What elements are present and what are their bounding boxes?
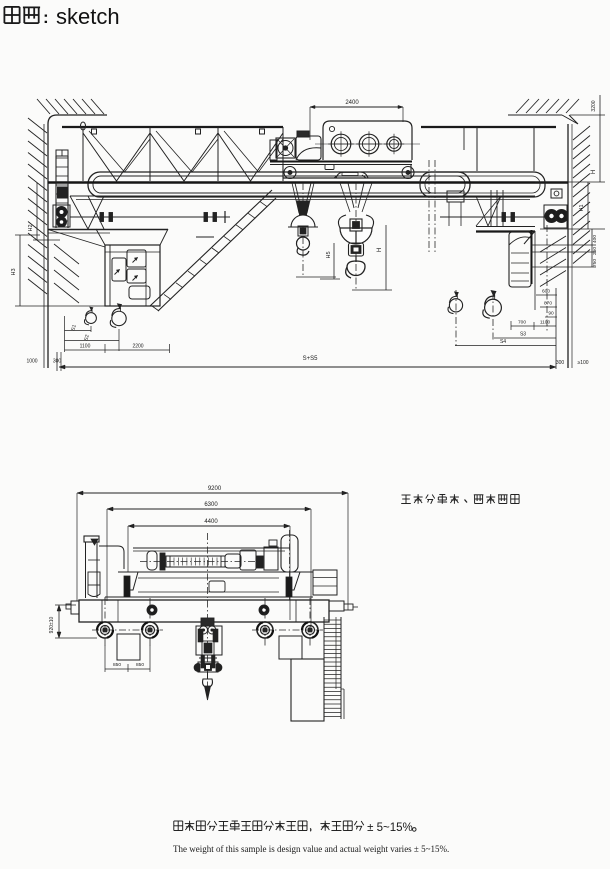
svg-text:250: 250	[592, 247, 598, 255]
svg-text:6300: 6300	[204, 502, 218, 508]
svg-text:1100: 1100	[80, 344, 91, 350]
svg-text:870: 870	[544, 301, 552, 307]
svg-text:4400: 4400	[204, 519, 218, 525]
svg-text:1000: 1000	[26, 359, 37, 365]
svg-text:≥100: ≥100	[577, 360, 588, 366]
svg-text:S3: S3	[520, 332, 526, 338]
svg-text:sketch: sketch	[56, 4, 120, 29]
svg-text:300: 300	[556, 360, 565, 366]
svg-text:S4: S4	[500, 339, 506, 345]
svg-text:S+S5: S+S5	[303, 356, 319, 362]
svg-text:850: 850	[113, 662, 121, 668]
svg-text:920±10: 920±10	[49, 616, 55, 633]
svg-text:± 5~15%: ± 5~15%	[367, 822, 413, 834]
svg-text:The weight of this sample is: The weight of this sample is design valu…	[173, 844, 449, 854]
svg-text:H5: H5	[326, 251, 332, 258]
svg-text:850: 850	[136, 662, 144, 668]
svg-text:H: H	[377, 248, 383, 252]
svg-text:H1: H1	[579, 204, 585, 211]
svg-text:H: H	[591, 170, 597, 174]
svg-text:600: 600	[542, 289, 550, 295]
svg-text:H2: H2	[28, 224, 34, 231]
svg-text:700: 700	[518, 320, 526, 326]
svg-text:9200: 9200	[208, 486, 222, 492]
svg-text:1100: 1100	[540, 320, 551, 326]
svg-text:3200: 3200	[591, 100, 597, 111]
svg-text:400: 400	[592, 235, 598, 243]
svg-text:90: 90	[548, 311, 554, 317]
svg-text:750: 750	[592, 259, 598, 267]
svg-text:2200: 2200	[132, 344, 143, 350]
svg-text:2400: 2400	[345, 100, 359, 106]
svg-text::: :	[43, 8, 49, 27]
svg-text:H3: H3	[11, 268, 17, 275]
